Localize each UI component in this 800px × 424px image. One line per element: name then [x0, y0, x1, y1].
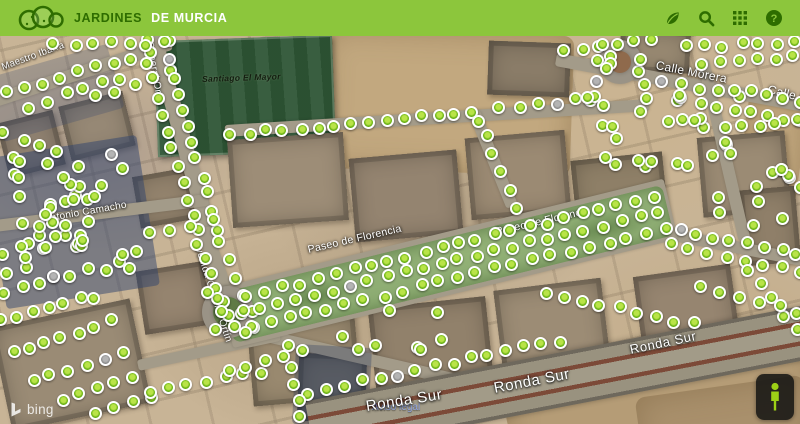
tree-marker[interactable] — [41, 157, 54, 170]
tree-marker[interactable] — [688, 316, 701, 329]
tree-marker[interactable] — [100, 264, 113, 277]
tree-marker[interactable] — [381, 114, 394, 127]
tree-marker[interactable] — [330, 267, 343, 280]
tree-marker[interactable] — [259, 354, 272, 367]
tree-marker[interactable] — [481, 129, 494, 142]
tree-marker[interactable] — [451, 271, 464, 284]
tree-marker[interactable] — [28, 374, 41, 387]
tree-marker[interactable] — [719, 121, 732, 134]
tree-marker[interactable] — [185, 136, 198, 149]
tree-marker[interactable] — [576, 295, 589, 308]
tree-marker[interactable] — [188, 151, 201, 164]
tree-marker[interactable] — [504, 184, 517, 197]
tree-marker[interactable] — [285, 361, 298, 374]
tree-marker[interactable] — [352, 343, 365, 356]
tree-marker[interactable] — [108, 57, 121, 70]
tree-marker[interactable] — [609, 198, 622, 211]
tree-marker[interactable] — [471, 250, 484, 263]
tree-marker[interactable] — [365, 259, 378, 272]
tree-marker[interactable] — [53, 331, 66, 344]
tree-marker[interactable] — [8, 345, 21, 358]
tree-marker[interactable] — [172, 160, 185, 173]
leaf-icon[interactable] — [660, 6, 684, 30]
tree-marker[interactable] — [39, 208, 52, 221]
tree-marker[interactable] — [336, 330, 349, 343]
tree-marker[interactable] — [212, 235, 225, 248]
tree-marker[interactable] — [380, 255, 393, 268]
tree-marker[interactable] — [105, 313, 118, 326]
tree-marker[interactable] — [712, 84, 725, 97]
tree-marker[interactable] — [13, 190, 26, 203]
tree-marker[interactable] — [688, 114, 701, 127]
tree-marker[interactable] — [417, 262, 430, 275]
tree-marker[interactable] — [375, 372, 388, 385]
tree-marker[interactable] — [604, 237, 617, 250]
tree-marker[interactable] — [253, 302, 266, 315]
tree-marker[interactable] — [22, 102, 35, 115]
tree-marker[interactable] — [557, 44, 570, 57]
tree-marker[interactable] — [675, 223, 688, 236]
tree-marker[interactable] — [124, 53, 137, 66]
tree-marker[interactable] — [37, 336, 50, 349]
tree-marker[interactable] — [105, 36, 118, 48]
tree-marker[interactable] — [576, 225, 589, 238]
tree-marker[interactable] — [10, 311, 23, 324]
tree-marker[interactable] — [650, 310, 663, 323]
tree-marker[interactable] — [714, 55, 727, 68]
tree-marker[interactable] — [127, 395, 140, 408]
tree-marker[interactable] — [49, 230, 62, 243]
tree-marker[interactable] — [600, 62, 613, 75]
tree-marker[interactable] — [338, 380, 351, 393]
tree-marker[interactable] — [450, 252, 463, 265]
tree-marker[interactable] — [33, 220, 46, 233]
tree-marker[interactable] — [558, 228, 571, 241]
tree-marker[interactable] — [164, 141, 177, 154]
tree-marker[interactable] — [23, 342, 36, 355]
tree-marker[interactable] — [472, 115, 485, 128]
tree-marker[interactable] — [724, 147, 737, 160]
tree-marker[interactable] — [71, 64, 84, 77]
tree-marker[interactable] — [287, 378, 300, 391]
tree-marker[interactable] — [710, 101, 723, 114]
tree-marker[interactable] — [73, 327, 86, 340]
tree-marker[interactable] — [67, 193, 80, 206]
tree-marker[interactable] — [129, 78, 142, 91]
tree-marker[interactable] — [53, 72, 66, 85]
tree-marker[interactable] — [327, 120, 340, 133]
tree-marker[interactable] — [398, 112, 411, 125]
tree-marker[interactable] — [201, 286, 214, 299]
tree-marker[interactable] — [39, 241, 52, 254]
tree-marker[interactable] — [755, 277, 768, 290]
tree-marker[interactable] — [648, 191, 661, 204]
tree-marker[interactable] — [107, 376, 120, 389]
tree-marker[interactable] — [733, 291, 746, 304]
tree-marker[interactable] — [72, 387, 85, 400]
tree-marker[interactable] — [635, 209, 648, 222]
tree-marker[interactable] — [36, 78, 49, 91]
tree-marker[interactable] — [360, 274, 373, 287]
tree-marker[interactable] — [0, 287, 10, 300]
tree-marker[interactable] — [415, 109, 428, 122]
tree-marker[interactable] — [296, 123, 309, 136]
tree-marker[interactable] — [794, 96, 800, 109]
tree-marker[interactable] — [523, 234, 536, 247]
tree-marker[interactable] — [313, 122, 326, 135]
tree-marker[interactable] — [255, 367, 268, 380]
tree-marker[interactable] — [794, 266, 800, 279]
tree-marker[interactable] — [627, 36, 640, 47]
tree-marker[interactable] — [758, 241, 771, 254]
tree-marker[interactable] — [614, 300, 627, 313]
tree-marker[interactable] — [752, 195, 765, 208]
tree-marker[interactable] — [619, 232, 632, 245]
tree-marker[interactable] — [681, 242, 694, 255]
tree-marker[interactable] — [517, 339, 530, 352]
tree-marker[interactable] — [223, 128, 236, 141]
tree-marker[interactable] — [13, 155, 26, 168]
tree-marker[interactable] — [689, 228, 702, 241]
tree-marker[interactable] — [158, 36, 171, 48]
tree-marker[interactable] — [616, 214, 629, 227]
tree-marker[interactable] — [344, 117, 357, 130]
tree-marker[interactable] — [63, 270, 76, 283]
tree-marker[interactable] — [223, 253, 236, 266]
tree-marker[interactable] — [349, 261, 362, 274]
tree-marker[interactable] — [791, 113, 800, 126]
tree-marker[interactable] — [431, 306, 444, 319]
tree-marker[interactable] — [713, 206, 726, 219]
tree-marker[interactable] — [776, 92, 789, 105]
tree-marker[interactable] — [123, 262, 136, 275]
tree-marker[interactable] — [181, 194, 194, 207]
tree-marker[interactable] — [760, 88, 773, 101]
tree-marker[interactable] — [565, 246, 578, 259]
tree-marker[interactable] — [485, 147, 498, 160]
tree-marker[interactable] — [19, 251, 32, 264]
tree-marker[interactable] — [379, 291, 392, 304]
tree-marker[interactable] — [448, 358, 461, 371]
tree-marker[interactable] — [706, 232, 719, 245]
tree-marker[interactable] — [597, 99, 610, 112]
tree-marker[interactable] — [96, 75, 109, 88]
tree-marker[interactable] — [465, 350, 478, 363]
tree-marker[interactable] — [17, 280, 30, 293]
tree-marker[interactable] — [597, 221, 610, 234]
tree-marker[interactable] — [437, 240, 450, 253]
tree-marker[interactable] — [660, 222, 673, 235]
tree-marker[interactable] — [599, 151, 612, 164]
tree-marker[interactable] — [178, 176, 191, 189]
tree-marker[interactable] — [16, 217, 29, 230]
tree-marker[interactable] — [244, 128, 257, 141]
tree-marker[interactable] — [12, 171, 25, 184]
tree-marker[interactable] — [514, 101, 527, 114]
tree-marker[interactable] — [143, 226, 156, 239]
tree-marker[interactable] — [56, 297, 69, 310]
tree-marker[interactable] — [680, 39, 693, 52]
tree-marker[interactable] — [673, 89, 686, 102]
tree-marker[interactable] — [308, 289, 321, 302]
satellite-map[interactable]: bing Aviso legal Maestro IbarraGeneral O… — [0, 36, 800, 424]
tree-marker[interactable] — [776, 260, 789, 273]
tree-marker[interactable] — [774, 299, 787, 312]
tree-marker[interactable] — [754, 120, 767, 133]
tree-marker[interactable] — [706, 149, 719, 162]
help-icon[interactable]: ? — [762, 6, 786, 30]
tree-marker[interactable] — [733, 54, 746, 67]
tree-marker[interactable] — [662, 115, 675, 128]
tree-marker[interactable] — [777, 243, 790, 256]
tree-marker[interactable] — [713, 286, 726, 299]
tree-marker[interactable] — [87, 292, 100, 305]
tree-marker[interactable] — [289, 293, 302, 306]
tree-marker[interactable] — [667, 316, 680, 329]
tree-marker[interactable] — [510, 202, 523, 215]
tree-marker[interactable] — [794, 181, 800, 194]
tree-marker[interactable] — [201, 185, 214, 198]
tree-marker[interactable] — [776, 212, 789, 225]
tree-marker[interactable] — [61, 365, 74, 378]
tree-marker[interactable] — [82, 262, 95, 275]
tree-marker[interactable] — [344, 280, 357, 293]
tree-marker[interactable] — [744, 105, 757, 118]
tree-marker[interactable] — [436, 257, 449, 270]
tree-marker[interactable] — [172, 88, 185, 101]
tree-marker[interactable] — [791, 323, 800, 336]
tree-marker[interactable] — [105, 148, 118, 161]
tree-marker[interactable] — [299, 306, 312, 319]
tree-marker[interactable] — [583, 241, 596, 254]
tree-marker[interactable] — [569, 92, 582, 105]
tree-marker[interactable] — [70, 39, 83, 52]
tree-marker[interactable] — [577, 43, 590, 56]
tree-marker[interactable] — [91, 381, 104, 394]
tree-marker[interactable] — [543, 248, 556, 261]
tree-marker[interactable] — [606, 120, 619, 133]
tree-marker[interactable] — [505, 258, 518, 271]
tree-marker[interactable] — [770, 53, 783, 66]
tree-marker[interactable] — [629, 195, 642, 208]
tree-marker[interactable] — [698, 38, 711, 51]
tree-marker[interactable] — [215, 305, 228, 318]
tree-marker[interactable] — [695, 58, 708, 71]
tree-marker[interactable] — [81, 359, 94, 372]
tree-marker[interactable] — [61, 86, 74, 99]
tree-marker[interactable] — [435, 333, 448, 346]
tree-marker[interactable] — [198, 172, 211, 185]
tree-marker[interactable] — [107, 401, 120, 414]
tree-marker[interactable] — [184, 220, 197, 233]
tree-marker[interactable] — [431, 274, 444, 287]
tree-marker[interactable] — [47, 270, 60, 283]
tree-marker[interactable] — [640, 227, 653, 240]
tree-marker[interactable] — [558, 291, 571, 304]
tree-marker[interactable] — [229, 272, 242, 285]
tree-marker[interactable] — [753, 296, 766, 309]
tree-marker[interactable] — [0, 267, 13, 280]
tree-marker[interactable] — [33, 139, 46, 152]
tree-marker[interactable] — [200, 376, 213, 389]
tree-marker[interactable] — [700, 247, 713, 260]
tree-marker[interactable] — [728, 84, 741, 97]
tree-marker[interactable] — [651, 206, 664, 219]
tree-marker[interactable] — [540, 287, 553, 300]
tree-marker[interactable] — [88, 190, 101, 203]
tree-marker[interactable] — [735, 119, 748, 132]
tree-marker[interactable] — [99, 353, 112, 366]
tree-marker[interactable] — [596, 38, 609, 51]
tree-marker[interactable] — [337, 297, 350, 310]
tree-marker[interactable] — [468, 266, 481, 279]
apps-grid-icon[interactable] — [728, 6, 752, 30]
tree-marker[interactable] — [788, 36, 800, 48]
tree-marker[interactable] — [751, 37, 764, 50]
tree-marker[interactable] — [383, 304, 396, 317]
tree-marker[interactable] — [741, 236, 754, 249]
tree-marker[interactable] — [163, 224, 176, 237]
tree-marker[interactable] — [741, 264, 754, 277]
tree-marker[interactable] — [777, 310, 790, 323]
tree-marker[interactable] — [645, 155, 658, 168]
tree-marker[interactable] — [258, 286, 271, 299]
tree-marker[interactable] — [487, 243, 500, 256]
tree-marker[interactable] — [506, 242, 519, 255]
tree-marker[interactable] — [320, 383, 333, 396]
tree-marker[interactable] — [414, 343, 427, 356]
tree-marker[interactable] — [789, 248, 800, 261]
tree-marker[interactable] — [590, 75, 603, 88]
tree-marker[interactable] — [554, 336, 567, 349]
tree-marker[interactable] — [42, 368, 55, 381]
tree-marker[interactable] — [391, 370, 404, 383]
tree-marker[interactable] — [327, 286, 340, 299]
tree-marker[interactable] — [488, 260, 501, 273]
tree-marker[interactable] — [532, 97, 545, 110]
tree-marker[interactable] — [610, 132, 623, 145]
tree-marker[interactable] — [296, 344, 309, 357]
tree-marker[interactable] — [41, 96, 54, 109]
tree-marker[interactable] — [18, 134, 31, 147]
tree-marker[interactable] — [117, 346, 130, 359]
tree-marker[interactable] — [50, 145, 63, 158]
tree-marker[interactable] — [199, 252, 212, 265]
tree-marker[interactable] — [750, 180, 763, 193]
tree-marker[interactable] — [209, 323, 222, 336]
tree-marker[interactable] — [611, 38, 624, 51]
tree-marker[interactable] — [265, 315, 278, 328]
tree-marker[interactable] — [541, 233, 554, 246]
tree-marker[interactable] — [140, 57, 153, 70]
tree-marker[interactable] — [489, 227, 502, 240]
tree-marker[interactable] — [293, 394, 306, 407]
tree-marker[interactable] — [146, 71, 159, 84]
tree-marker[interactable] — [205, 267, 218, 280]
tree-marker[interactable] — [503, 224, 516, 237]
tree-marker[interactable] — [775, 163, 788, 176]
tree-marker[interactable] — [551, 98, 564, 111]
tree-marker[interactable] — [162, 381, 175, 394]
tree-marker[interactable] — [721, 251, 734, 264]
tree-marker[interactable] — [494, 165, 507, 178]
tree-marker[interactable] — [126, 371, 139, 384]
tree-marker[interactable] — [640, 92, 653, 105]
tree-marker[interactable] — [433, 109, 446, 122]
tree-marker[interactable] — [89, 59, 102, 72]
tree-marker[interactable] — [156, 109, 169, 122]
tree-marker[interactable] — [116, 162, 129, 175]
tree-marker[interactable] — [429, 358, 442, 371]
tree-marker[interactable] — [362, 116, 375, 129]
tree-marker[interactable] — [190, 238, 203, 251]
tree-marker[interactable] — [768, 117, 781, 130]
tree-marker[interactable] — [747, 219, 760, 232]
tree-marker[interactable] — [162, 126, 175, 139]
tree-marker[interactable] — [82, 215, 95, 228]
tree-marker[interactable] — [293, 279, 306, 292]
tree-marker[interactable] — [712, 191, 725, 204]
tree-marker[interactable] — [638, 78, 651, 91]
tree-marker[interactable] — [400, 264, 413, 277]
tree-marker[interactable] — [745, 84, 758, 97]
tree-marker[interactable] — [312, 272, 325, 285]
tree-marker[interactable] — [259, 123, 272, 136]
tree-marker[interactable] — [76, 82, 89, 95]
tree-marker[interactable] — [163, 53, 176, 66]
tree-marker[interactable] — [33, 277, 46, 290]
tree-marker[interactable] — [786, 49, 799, 62]
tree-marker[interactable] — [790, 307, 800, 320]
tree-marker[interactable] — [239, 326, 252, 339]
tree-marker[interactable] — [634, 53, 647, 66]
tree-marker[interactable] — [86, 37, 99, 50]
tree-marker[interactable] — [130, 245, 143, 258]
tree-marker[interactable] — [27, 305, 40, 318]
tree-marker[interactable] — [57, 394, 70, 407]
tree-marker[interactable] — [771, 38, 784, 51]
tree-marker[interactable] — [284, 310, 297, 323]
tree-marker[interactable] — [113, 73, 126, 86]
tree-marker[interactable] — [396, 286, 409, 299]
tree-marker[interactable] — [492, 101, 505, 114]
tree-marker[interactable] — [89, 89, 102, 102]
tree-marker[interactable] — [737, 36, 750, 49]
tree-marker[interactable] — [634, 105, 647, 118]
tree-marker[interactable] — [182, 120, 195, 133]
tree-marker[interactable] — [179, 378, 192, 391]
tree-marker[interactable] — [557, 211, 570, 224]
tree-marker[interactable] — [655, 75, 668, 88]
tree-marker[interactable] — [592, 203, 605, 216]
tree-marker[interactable] — [729, 104, 742, 117]
tree-marker[interactable] — [275, 124, 288, 137]
tree-marker[interactable] — [480, 349, 493, 362]
tree-marker[interactable] — [722, 234, 735, 247]
tree-marker[interactable] — [756, 259, 769, 272]
tree-marker[interactable] — [695, 97, 708, 110]
tree-marker[interactable] — [239, 361, 252, 374]
tree-marker[interactable] — [645, 36, 658, 46]
tree-marker[interactable] — [124, 37, 137, 50]
tree-marker[interactable] — [72, 160, 85, 173]
tree-marker[interactable] — [499, 344, 512, 357]
tree-marker[interactable] — [468, 234, 481, 247]
tree-marker[interactable] — [416, 278, 429, 291]
tree-marker[interactable] — [57, 171, 70, 184]
tree-marker[interactable] — [356, 373, 369, 386]
tree-marker[interactable] — [447, 108, 460, 121]
